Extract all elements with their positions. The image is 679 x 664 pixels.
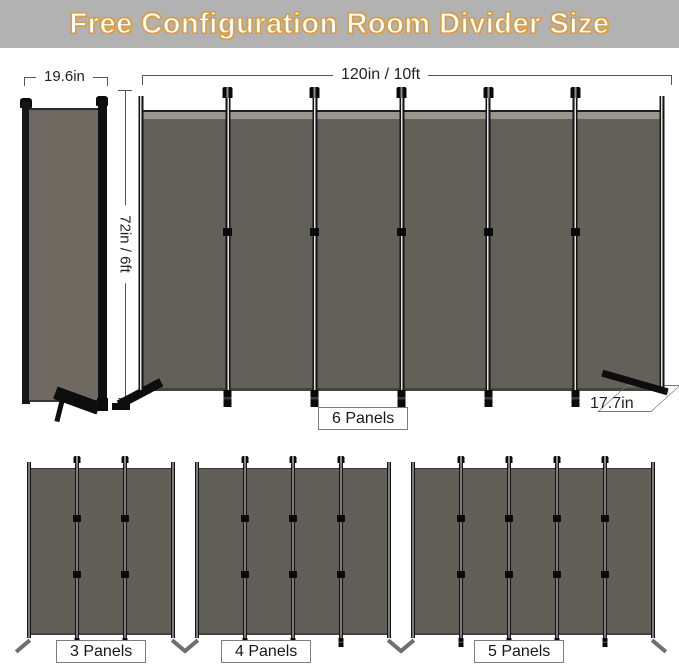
divider-pole bbox=[139, 96, 144, 390]
dimension-tick bbox=[118, 90, 132, 91]
hinge-top-icon bbox=[290, 456, 297, 463]
divider-fabric bbox=[29, 468, 173, 635]
divider-pole bbox=[27, 462, 31, 638]
splay-foot bbox=[651, 639, 667, 654]
hinge-mid-icon bbox=[73, 515, 81, 522]
pole-foot bbox=[571, 390, 579, 407]
hinge-mid-icon bbox=[289, 571, 297, 578]
divider-pole bbox=[339, 462, 343, 638]
six-panel-divider bbox=[141, 88, 662, 408]
pole-foot bbox=[311, 390, 319, 407]
hinge-top-icon bbox=[397, 87, 407, 98]
dimension-tick bbox=[24, 77, 25, 86]
hinge-mid-icon bbox=[289, 515, 297, 522]
hinge-top-icon bbox=[570, 87, 580, 98]
height-value: 72in / 6ft bbox=[117, 205, 134, 283]
divider-pole bbox=[291, 462, 295, 638]
pole-foot bbox=[603, 638, 608, 647]
divider-pole bbox=[603, 462, 607, 638]
hinge-mid-icon bbox=[73, 571, 81, 578]
four-panel-label: 4 Panels bbox=[221, 640, 311, 663]
hinge-mid-icon bbox=[571, 228, 580, 236]
hinge-mid-icon bbox=[553, 515, 561, 522]
hinge-mid-icon bbox=[310, 228, 319, 236]
pole-foot bbox=[398, 390, 406, 407]
divider-pole bbox=[387, 462, 391, 638]
dimension-tick bbox=[107, 77, 108, 86]
splay-foot bbox=[399, 639, 415, 654]
hinge-mid-icon bbox=[121, 515, 129, 522]
three-panel-label: 3 Panels bbox=[56, 640, 146, 663]
divider-pole bbox=[507, 462, 511, 638]
splay-foot bbox=[183, 639, 199, 654]
divider-pole bbox=[651, 462, 655, 638]
pole-foot bbox=[484, 390, 492, 407]
folded-fabric bbox=[29, 108, 99, 402]
divider-pole bbox=[459, 462, 463, 638]
pole-foot bbox=[339, 638, 344, 647]
divider-pole bbox=[660, 96, 665, 390]
hinge-top-icon bbox=[483, 87, 493, 98]
pole-foot bbox=[224, 390, 232, 407]
hinge-mid-icon bbox=[601, 515, 609, 522]
hinge-mid-icon bbox=[337, 515, 345, 522]
divider-pole bbox=[243, 462, 247, 638]
hinge-mid-icon bbox=[601, 571, 609, 578]
hinge-top-icon bbox=[338, 456, 345, 463]
three-panel-divider bbox=[29, 468, 173, 632]
foot-depth-value: 17.7in bbox=[590, 395, 634, 413]
hinge-mid-icon bbox=[397, 228, 406, 236]
divider-pole bbox=[312, 96, 317, 390]
divider-pole bbox=[411, 462, 415, 638]
five-panel-divider bbox=[413, 468, 653, 632]
divider-pole bbox=[399, 96, 404, 390]
hinge-mid-icon bbox=[121, 571, 129, 578]
room-divider-size-infographic: Free Configuration Room Divider Size 19.… bbox=[0, 0, 679, 664]
folded-frame-right bbox=[98, 100, 107, 406]
hinge-top-icon bbox=[122, 456, 129, 463]
four-panel-divider bbox=[197, 468, 389, 632]
dimension-tick bbox=[671, 75, 672, 85]
dimension-tick bbox=[142, 75, 143, 85]
hinge-top-icon bbox=[242, 456, 249, 463]
hinge-top-icon bbox=[506, 456, 513, 463]
hinge-mid-icon bbox=[505, 515, 513, 522]
hinge-mid-icon bbox=[337, 571, 345, 578]
left-foot bbox=[112, 403, 130, 410]
divider-pole bbox=[225, 96, 230, 390]
hinge-top-icon bbox=[602, 456, 609, 463]
divider-pole bbox=[573, 96, 578, 390]
hinge-mid-icon bbox=[241, 515, 249, 522]
splay-foot bbox=[15, 639, 31, 654]
page-title: Free Configuration Room Divider Size bbox=[69, 8, 609, 41]
divider-pole bbox=[555, 462, 559, 638]
divider-fabric bbox=[413, 468, 653, 635]
hinge-mid-icon bbox=[553, 571, 561, 578]
pole-foot bbox=[459, 638, 464, 647]
hinge-mid-icon bbox=[223, 228, 232, 236]
hinge-top-icon bbox=[554, 456, 561, 463]
title-banner: Free Configuration Room Divider Size bbox=[0, 0, 679, 48]
hinge-top-icon bbox=[223, 87, 233, 98]
hinge-mid-icon bbox=[241, 571, 249, 578]
hinge-top-icon bbox=[74, 456, 81, 463]
diagram-area: 19.6in 120in / 10ft 72in / 6ft bbox=[0, 48, 679, 664]
hinge-top-icon bbox=[458, 456, 465, 463]
divider-pole bbox=[171, 462, 175, 638]
hinge-top-icon bbox=[310, 87, 320, 98]
folded-width-value: 19.6in bbox=[36, 68, 93, 85]
divider-pole bbox=[75, 462, 79, 638]
divider-pole bbox=[195, 462, 199, 638]
total-width-value: 120in / 10ft bbox=[333, 66, 428, 84]
hinge-mid-icon bbox=[505, 571, 513, 578]
hinge-mid-icon bbox=[457, 515, 465, 522]
hinge-mid-icon bbox=[457, 571, 465, 578]
five-panel-label: 5 Panels bbox=[474, 640, 564, 663]
divider-pole bbox=[486, 96, 491, 390]
main-divider-label: 6 Panels bbox=[318, 407, 408, 430]
hinge-mid-icon bbox=[484, 228, 493, 236]
folded-panel-view bbox=[20, 98, 110, 428]
divider-pole bbox=[123, 462, 127, 638]
